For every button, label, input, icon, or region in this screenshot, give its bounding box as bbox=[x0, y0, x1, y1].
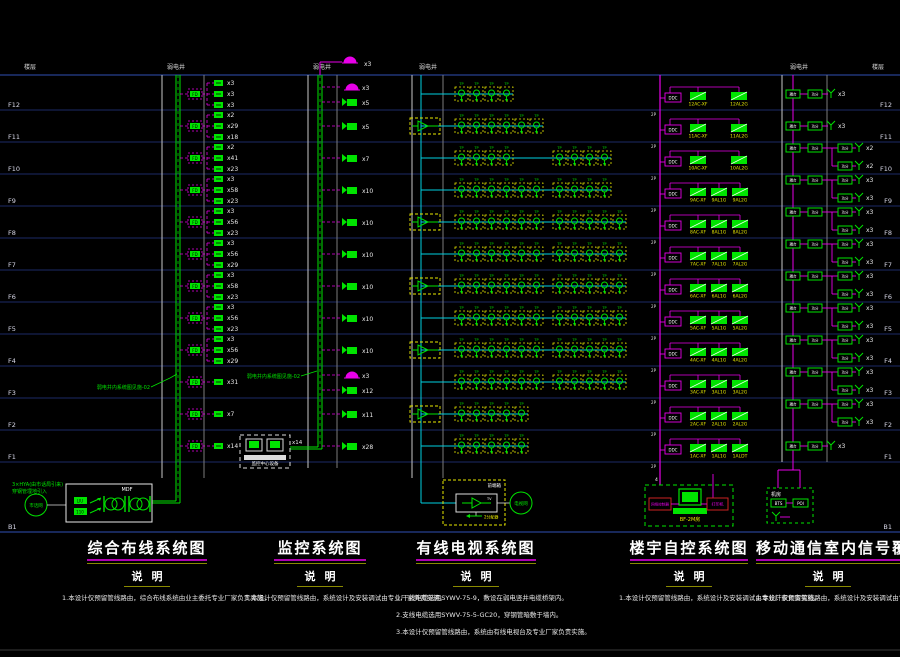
mobile-unit-label: 耦合 bbox=[790, 444, 798, 449]
outlet-count: x7 bbox=[227, 411, 235, 418]
coil bbox=[130, 498, 142, 510]
tap-tag: TP bbox=[616, 370, 621, 374]
antenna-icon bbox=[855, 399, 859, 403]
antenna-icon bbox=[859, 257, 863, 261]
antenna-icon bbox=[831, 89, 835, 93]
outlet-count: x58 bbox=[227, 283, 238, 290]
coil bbox=[112, 498, 124, 510]
note-line: 2.支线电缆选用SYWV-75-5-GC20，穿钢管暗敷于墙内。 bbox=[396, 610, 556, 621]
tap-arrowhead bbox=[505, 195, 508, 198]
antenna-icon bbox=[855, 289, 859, 293]
tap-tag: TP bbox=[488, 242, 493, 246]
tap-icon bbox=[474, 186, 480, 192]
antenna-icon bbox=[859, 289, 863, 293]
tap-tag: TP bbox=[586, 242, 591, 246]
antenna-count: x3 bbox=[866, 259, 874, 266]
camera-lens bbox=[342, 346, 347, 354]
telecom-network-label: 市话网 bbox=[29, 502, 43, 509]
mobile-unit-label: 功分 bbox=[842, 388, 850, 393]
ba-panel-label: 8AL2G bbox=[733, 230, 748, 236]
outlet-count: x29 bbox=[227, 358, 238, 365]
ba-panel-label: 3AC-XF bbox=[690, 390, 706, 396]
camera-count: x3 bbox=[362, 373, 370, 380]
ba-panel-label: 2AC-XF bbox=[690, 422, 706, 428]
tap-icon bbox=[504, 346, 510, 352]
tap-icon bbox=[534, 122, 540, 128]
camera-icon bbox=[347, 387, 357, 394]
antenna-icon bbox=[776, 512, 780, 516]
camera-count: x10 bbox=[362, 348, 373, 355]
ba-panel-label: 1AC-XF bbox=[690, 454, 706, 460]
antenna-icon bbox=[859, 367, 863, 371]
tap-arrowhead bbox=[603, 195, 606, 198]
tap-icon bbox=[504, 122, 510, 128]
title-underline-2 bbox=[87, 563, 207, 564]
tap-icon bbox=[572, 346, 578, 352]
ddc-label: DDC bbox=[669, 320, 678, 325]
tap-icon bbox=[504, 378, 510, 384]
tap-icon bbox=[587, 378, 593, 384]
tap-tag: TP bbox=[601, 370, 606, 374]
tap-tag: TP bbox=[473, 306, 478, 310]
tap-tag: TP bbox=[616, 242, 621, 246]
tap-arrowhead bbox=[490, 131, 493, 134]
ba-panel-label: 3AL1G bbox=[712, 390, 727, 396]
camera-count: x28 bbox=[362, 444, 373, 451]
antenna-icon bbox=[855, 271, 859, 275]
tap-arrowhead bbox=[603, 291, 606, 294]
tap-icon bbox=[534, 378, 540, 384]
tap-tag: TP bbox=[458, 146, 463, 150]
ba-panel-label: 8AC-XF bbox=[690, 230, 706, 236]
floor-label-left: F6 bbox=[8, 293, 16, 301]
tap-arrowhead bbox=[535, 355, 538, 358]
outlet-count: x3 bbox=[227, 176, 235, 183]
tap-tag: TP bbox=[458, 306, 463, 310]
antenna-icon bbox=[855, 335, 859, 339]
tap-arrowhead bbox=[460, 259, 463, 262]
tap-arrowhead bbox=[573, 163, 576, 166]
note-line: 1.本设计仅预留管线路由，系统设计及安装调试由专业厂家负责实施。 bbox=[619, 593, 759, 604]
outlet-count: x2 bbox=[227, 112, 235, 119]
tap-tag: TP bbox=[503, 338, 508, 342]
tap-arrowhead bbox=[535, 227, 538, 230]
tap-arrowhead bbox=[573, 323, 576, 326]
title-underline-2 bbox=[630, 563, 748, 564]
antenna-count: x3 bbox=[866, 387, 874, 394]
mobile-unit-label: 功分 bbox=[842, 338, 850, 343]
camera-lens bbox=[342, 410, 347, 418]
antenna-count: x3 bbox=[866, 291, 874, 298]
tap-tag: TP bbox=[488, 306, 493, 310]
mobile-room-label: 机房 bbox=[771, 491, 781, 498]
tap-icon bbox=[602, 250, 608, 256]
antenna-count: x3 bbox=[866, 177, 874, 184]
tap-arrowhead bbox=[490, 323, 493, 326]
outlet-count: x18 bbox=[227, 134, 238, 141]
antenna-icon bbox=[859, 417, 863, 421]
antenna-count: x3 bbox=[866, 195, 874, 202]
floor-label-left: F5 bbox=[8, 325, 16, 333]
ba-riser-tick: 2P bbox=[651, 144, 657, 149]
mobile-unit-label: 功分 bbox=[842, 292, 850, 297]
ba-panel-label: 4AL2G bbox=[733, 358, 748, 364]
ddc-label: DDC bbox=[669, 384, 678, 389]
tap-arrowhead bbox=[490, 259, 493, 262]
tap-tag: TP bbox=[488, 82, 493, 86]
tap-tag: TP bbox=[571, 274, 576, 278]
notes-heading: 说明 bbox=[245, 568, 395, 584]
tap-tag: TP bbox=[518, 402, 523, 406]
camera-lens bbox=[342, 282, 347, 290]
tap-arrowhead bbox=[520, 291, 523, 294]
tap-icon bbox=[602, 378, 608, 384]
floor-label-left: F1 bbox=[8, 453, 16, 461]
tap-arrowhead bbox=[588, 355, 591, 358]
antenna-icon bbox=[859, 335, 863, 339]
antenna-icon bbox=[827, 89, 831, 93]
camera-count: x5 bbox=[362, 124, 370, 131]
tap-icon bbox=[587, 250, 593, 256]
outlet-count: x3 bbox=[227, 272, 235, 279]
ba-riser-tick: 2P bbox=[651, 208, 657, 213]
section-title: 监控系统图 bbox=[245, 537, 395, 558]
outlet-count: x56 bbox=[227, 251, 238, 258]
tap-arrowhead bbox=[558, 259, 561, 262]
antenna-count: x3 bbox=[866, 369, 874, 376]
tap-icon bbox=[459, 442, 465, 448]
tap-tag: TP bbox=[616, 306, 621, 310]
outlet-count: x14 bbox=[227, 443, 238, 450]
tap-icon bbox=[572, 218, 578, 224]
camera-count: x11 bbox=[362, 412, 373, 419]
tap-icon bbox=[504, 154, 510, 160]
ba-riser-tick: 2P bbox=[651, 272, 657, 277]
tap-arrowhead bbox=[490, 451, 493, 454]
ba-riser-tick: 2P bbox=[651, 240, 657, 245]
coil bbox=[105, 498, 117, 510]
tap-arrowhead bbox=[490, 355, 493, 358]
tap-icon bbox=[474, 346, 480, 352]
tap-tag: TP bbox=[518, 306, 523, 310]
ddc-label: DDC bbox=[669, 160, 678, 165]
tap-tag: TP bbox=[533, 338, 538, 342]
tap-tag: TP bbox=[518, 242, 523, 246]
mobile-unit-label: 功分 bbox=[842, 402, 850, 407]
tap-tag: TP bbox=[503, 274, 508, 278]
mobile-unit-label: 功分 bbox=[842, 242, 850, 247]
tap-icon bbox=[557, 314, 563, 320]
ddc-label: DDC bbox=[669, 352, 678, 357]
tap-arrowhead bbox=[588, 195, 591, 198]
mobile-unit-label: 功分 bbox=[842, 228, 850, 233]
workstation-screen bbox=[682, 492, 698, 502]
tap-icon bbox=[459, 154, 465, 160]
antenna-icon bbox=[855, 303, 859, 307]
tap-tag: TP bbox=[616, 338, 621, 342]
outlet-count: x23 bbox=[227, 198, 238, 205]
tap-arrowhead bbox=[505, 99, 508, 102]
mdf-label: MDF bbox=[121, 487, 132, 493]
antenna-icon bbox=[859, 161, 863, 165]
tap-icon bbox=[459, 378, 465, 384]
ba-panel-label: 5AL1G bbox=[712, 326, 727, 332]
tap-icon bbox=[489, 250, 495, 256]
antenna-icon bbox=[855, 353, 859, 357]
tap-tag: TP bbox=[616, 210, 621, 214]
tap-tag: TP bbox=[473, 146, 478, 150]
ba-riser-tick: 2P bbox=[651, 432, 657, 437]
fd-label: FD bbox=[192, 316, 197, 321]
tap-arrowhead bbox=[603, 163, 606, 166]
ba-panel-label: 9AL1G bbox=[712, 198, 727, 204]
tap-icon bbox=[557, 282, 563, 288]
outlet-count: x56 bbox=[227, 219, 238, 226]
ba-panel-label: 6AL2G bbox=[733, 294, 748, 300]
ddc-label: DDC bbox=[669, 128, 678, 133]
tap-arrowhead bbox=[490, 387, 493, 390]
tap-icon bbox=[519, 250, 525, 256]
mobile-unit-label: 耦合 bbox=[790, 210, 798, 215]
tap-icon bbox=[504, 410, 510, 416]
tap-icon bbox=[557, 378, 563, 384]
mobile-unit-label: 功分 bbox=[842, 210, 850, 215]
tap-icon bbox=[474, 154, 480, 160]
antenna-icon bbox=[855, 385, 859, 389]
tap-tag: TP bbox=[458, 210, 463, 214]
basement-label-left: B1 bbox=[8, 523, 17, 531]
tap-tag: TP bbox=[473, 338, 478, 342]
tap-icon bbox=[602, 186, 608, 192]
tap-arrowhead bbox=[520, 227, 523, 230]
antenna-icon bbox=[855, 161, 859, 165]
antenna-icon bbox=[855, 175, 859, 179]
printer-label: 打印机 bbox=[712, 501, 724, 507]
tap-tag: TP bbox=[533, 274, 538, 278]
floor-label-left: F12 bbox=[8, 101, 20, 109]
tap-tag: TP bbox=[488, 434, 493, 438]
roof-camera-count: x3 bbox=[364, 61, 372, 68]
tap-icon bbox=[474, 90, 480, 96]
outlet-count: x3 bbox=[227, 304, 235, 311]
tap-tag: TP bbox=[458, 114, 463, 118]
tap-arrowhead bbox=[460, 451, 463, 454]
tap-icon bbox=[602, 154, 608, 160]
tap-tag: TP bbox=[473, 402, 478, 406]
fd-label: FD bbox=[192, 220, 197, 225]
tap-arrowhead bbox=[588, 163, 591, 166]
antenna-count: x3 bbox=[866, 227, 874, 234]
notes-underline bbox=[805, 586, 851, 587]
tap-tag: TP bbox=[586, 210, 591, 214]
antenna-count: x3 bbox=[866, 337, 874, 344]
tap-tag: TP bbox=[571, 242, 576, 246]
tap-tag: TP bbox=[556, 274, 561, 278]
camera-lens bbox=[342, 186, 347, 194]
poi-label: POI bbox=[797, 501, 804, 506]
tap-icon bbox=[519, 346, 525, 352]
tap-icon bbox=[519, 218, 525, 224]
monitor-screen bbox=[249, 441, 259, 448]
roof-dome-camera-icon bbox=[344, 57, 356, 63]
outlet-count: x23 bbox=[227, 166, 238, 173]
tap-arrowhead bbox=[618, 227, 621, 230]
antenna-icon bbox=[855, 417, 859, 421]
tap-arrowhead bbox=[475, 451, 478, 454]
notes-heading: 说明 bbox=[619, 568, 759, 584]
outlet-count: x2 bbox=[227, 144, 235, 151]
fd-label: FD bbox=[192, 156, 197, 161]
tap-arrowhead bbox=[490, 291, 493, 294]
ddc-label: DDC bbox=[669, 192, 678, 197]
tap-icon bbox=[519, 442, 525, 448]
camera-icon bbox=[347, 283, 357, 290]
liu-label: LIU bbox=[77, 499, 83, 504]
notes-underline bbox=[666, 586, 712, 587]
tap-arrowhead bbox=[520, 323, 523, 326]
tap-icon bbox=[587, 186, 593, 192]
tap-icon bbox=[572, 282, 578, 288]
outlet-count: x23 bbox=[227, 294, 238, 301]
tap-tag: TP bbox=[488, 146, 493, 150]
mobile-unit-label: 功分 bbox=[842, 196, 850, 201]
tap-icon bbox=[617, 282, 623, 288]
tap-icon bbox=[587, 218, 593, 224]
antenna-icon bbox=[859, 207, 863, 211]
tap-arrowhead bbox=[490, 227, 493, 230]
camera-lens bbox=[342, 250, 347, 258]
antenna-count: x3 bbox=[838, 91, 846, 98]
antenna-count: x3 bbox=[866, 305, 874, 312]
mobile-unit-label: 功分 bbox=[812, 124, 820, 129]
outlet-count: x56 bbox=[227, 315, 238, 322]
camera-icon bbox=[347, 411, 357, 418]
title-underline bbox=[416, 559, 536, 561]
tap-tag: TP bbox=[458, 178, 463, 182]
antenna-icon bbox=[859, 353, 863, 357]
outlet-count: x29 bbox=[227, 123, 238, 130]
tap-arrowhead bbox=[558, 227, 561, 230]
tap-icon bbox=[474, 442, 480, 448]
outlet-count: x3 bbox=[227, 91, 235, 98]
notes-underline bbox=[124, 586, 170, 587]
mobile-unit-label: 功分 bbox=[812, 92, 820, 97]
tap-icon bbox=[617, 250, 623, 256]
tap-tag: TP bbox=[616, 274, 621, 278]
ba-panel-label: 9AL2G bbox=[733, 198, 748, 204]
coil bbox=[137, 498, 149, 510]
antenna-count: x3 bbox=[866, 401, 874, 408]
tap-arrowhead bbox=[475, 195, 478, 198]
tap-tag: TP bbox=[571, 178, 576, 182]
floor-label-right: F2 bbox=[884, 421, 892, 429]
tap-tag: TP bbox=[533, 114, 538, 118]
mobile-unit-label: 功分 bbox=[812, 402, 820, 407]
tap-icon bbox=[474, 218, 480, 224]
mobile-unit-label: 功分 bbox=[842, 164, 850, 169]
outlet-count: x29 bbox=[227, 262, 238, 269]
tap-icon bbox=[617, 346, 623, 352]
mobile-unit-label: 功分 bbox=[812, 370, 820, 375]
tap-icon bbox=[587, 314, 593, 320]
tap-tag: TP bbox=[503, 114, 508, 118]
tap-tag: TP bbox=[601, 178, 606, 182]
floor-label-left: F8 bbox=[8, 229, 16, 237]
fd-label: FD bbox=[192, 412, 197, 417]
cabling-annotation: 弱电井内系统图见施-02 bbox=[97, 384, 150, 391]
title-block-catv: 有线电视系统图 说明 1.干线电缆选用SYWV-75-9，敷设在弱电竖井电缆桥架… bbox=[396, 537, 556, 638]
tap-arrowhead bbox=[603, 323, 606, 326]
tap-icon bbox=[519, 314, 525, 320]
tap-arrowhead bbox=[460, 227, 463, 230]
ddc-label: DDC bbox=[669, 256, 678, 261]
antenna-icon bbox=[827, 121, 831, 125]
title-underline-2 bbox=[756, 563, 900, 564]
tap-arrowhead bbox=[603, 387, 606, 390]
tap-arrowhead bbox=[573, 291, 576, 294]
ba-panel-label: 1AL1G bbox=[712, 454, 727, 460]
outlet-count: x3 bbox=[227, 208, 235, 215]
tap-icon bbox=[557, 250, 563, 256]
section-title: 综合布线系统图 bbox=[62, 537, 232, 558]
tap-icon bbox=[519, 378, 525, 384]
monitor-screen bbox=[270, 441, 280, 448]
tap-arrowhead bbox=[505, 291, 508, 294]
shaft-column-header: 弱电井 bbox=[167, 63, 185, 71]
tap-tag: TP bbox=[488, 114, 493, 118]
tap-tag: TP bbox=[488, 178, 493, 182]
tap-icon bbox=[602, 346, 608, 352]
mobile-unit-label: 功分 bbox=[842, 306, 850, 311]
headend-splitter-arrow bbox=[466, 514, 470, 518]
tap-icon bbox=[474, 410, 480, 416]
tap-tag: TP bbox=[503, 370, 508, 374]
ba-riser-tick: 2P bbox=[651, 368, 657, 373]
ba-riser-tick: 2P bbox=[651, 336, 657, 341]
network-controller-label: 网络控制器 bbox=[651, 502, 669, 507]
tap-icon bbox=[504, 442, 510, 448]
tap-arrowhead bbox=[460, 355, 463, 358]
outlet-count: x56 bbox=[227, 347, 238, 354]
tap-icon bbox=[534, 282, 540, 288]
tv-network-label: 电视网 bbox=[514, 500, 528, 507]
camera-icon bbox=[347, 155, 357, 162]
mobile-unit-label: 功分 bbox=[842, 420, 850, 425]
antenna-icon bbox=[772, 512, 776, 516]
floor-label-right: F6 bbox=[884, 293, 892, 301]
tap-arrowhead bbox=[520, 355, 523, 358]
tap-tag: TP bbox=[503, 82, 508, 86]
antenna-icon bbox=[859, 321, 863, 325]
tap-tag: TP bbox=[518, 338, 523, 342]
tap-tag: TP bbox=[571, 370, 576, 374]
antenna-icon bbox=[855, 193, 859, 197]
antenna-count: x3 bbox=[866, 419, 874, 426]
ba-panel-label: 4AL1G bbox=[712, 358, 727, 364]
tap-arrowhead bbox=[603, 259, 606, 262]
tap-arrowhead bbox=[475, 291, 478, 294]
tap-tag: TP bbox=[601, 146, 606, 150]
mobile-unit-label: 耦合 bbox=[790, 274, 798, 279]
tap-icon bbox=[602, 314, 608, 320]
title-underline bbox=[630, 559, 748, 561]
tap-arrowhead bbox=[535, 259, 538, 262]
headend-amp-icon bbox=[472, 498, 481, 508]
tap-icon bbox=[489, 378, 495, 384]
outlet-count: x3 bbox=[227, 80, 235, 87]
tap-icon bbox=[489, 314, 495, 320]
tap-arrowhead bbox=[475, 227, 478, 230]
